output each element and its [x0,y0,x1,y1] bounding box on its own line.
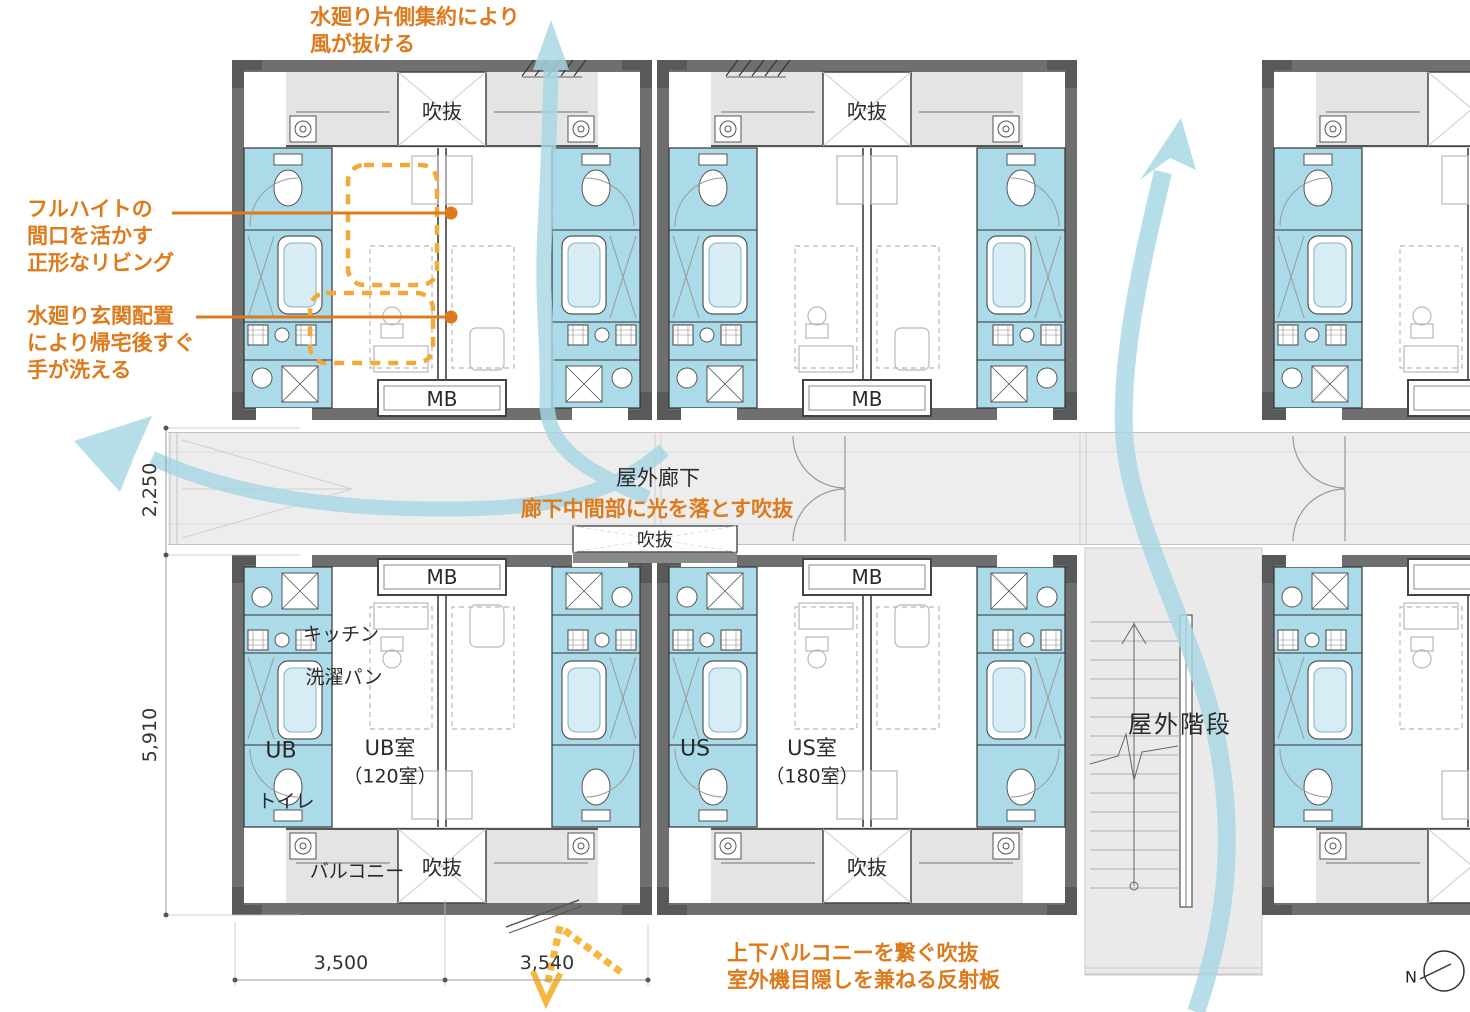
kitchen-label: キッチン [303,620,379,647]
us-room-label: US室 [787,732,837,762]
corridor-void-label: 吹抜 [637,526,673,552]
north-label: N [1405,968,1417,987]
annotation-balcony-void-line1: 上下バルコニーを繋ぐ吹抜 [727,940,1000,967]
outdoor-corridor-label: 屋外廊下 [616,462,700,492]
annotation-living-line2: 間口を活かす [27,223,174,250]
void-label-upper-mid: 吹抜 [847,96,887,125]
annotation-living-line1: フルハイトの [27,196,174,223]
annotation-entrance-water-line3: 手が洗える [27,357,195,384]
void-label-upper-left: 吹抜 [422,96,462,125]
dim-corridor-depth: 2,250 [139,463,161,517]
dim-unit-depth: 5,910 [139,708,161,762]
dim-bay-width-left: 3,500 [314,952,368,974]
mb-label-upper-mid: MB [852,387,883,411]
compass-icon [1420,951,1464,991]
void-label-lower-mid: 吹抜 [847,852,887,881]
ub-room-count-label: （120室） [343,762,436,789]
annotation-balcony-void: 上下バルコニーを繋ぐ吹抜 室外機目隠しを兼ねる反射板 [727,940,1000,994]
outdoor-stairs-label: 屋外階段 [1128,705,1232,740]
annotation-living: フルハイトの 間口を活かす 正形なリビング [27,196,174,277]
us-room-count-label: （180室） [765,762,858,789]
balcony-label: バルコニー [310,857,405,884]
void-label-lower-left: 吹抜 [422,852,462,881]
annotation-balcony-void-line2: 室外機目隠しを兼ねる反射板 [727,967,1000,994]
ub-room-label: UB室 [365,732,416,762]
annotation-entrance-water-line2: により帰宅後すぐ [27,330,195,357]
us-label: US [680,737,710,762]
mb-label-lower-mid: MB [852,565,883,589]
ub-label: UB [265,739,296,764]
mb-label-lower-left: MB [427,565,458,589]
laundry-pan-label: 洗濯パン [306,663,383,690]
annotation-airflow-top-line1: 水廻り片側集約により [310,4,520,31]
dim-bay-width-right: 3,540 [520,952,574,974]
mb-label-upper-left: MB [427,387,458,411]
annotation-entrance-water-line1: 水廻り玄関配置 [27,303,195,330]
outdoor-corridor-band [168,432,1470,545]
annotation-corridor-void: 廊下中間部に光を落とす吹抜 [521,496,793,523]
annotation-living-line3: 正形なリビング [27,250,174,277]
toilet-label: トイレ [257,787,314,814]
floor-plan-page: 吹抜 吹抜 MB MB 屋外廊下 吹抜 MB MB キッチン 洗濯パン UB U… [0,0,1470,1012]
annotation-airflow-top: 水廻り片側集約により 風が抜ける [310,4,520,58]
annotation-corridor-void-text: 廊下中間部に光を落とす吹抜 [521,496,793,523]
annotation-airflow-top-line2: 風が抜ける [310,31,520,58]
annotation-entrance-water: 水廻り玄関配置 により帰宅後すぐ 手が洗える [27,303,195,384]
